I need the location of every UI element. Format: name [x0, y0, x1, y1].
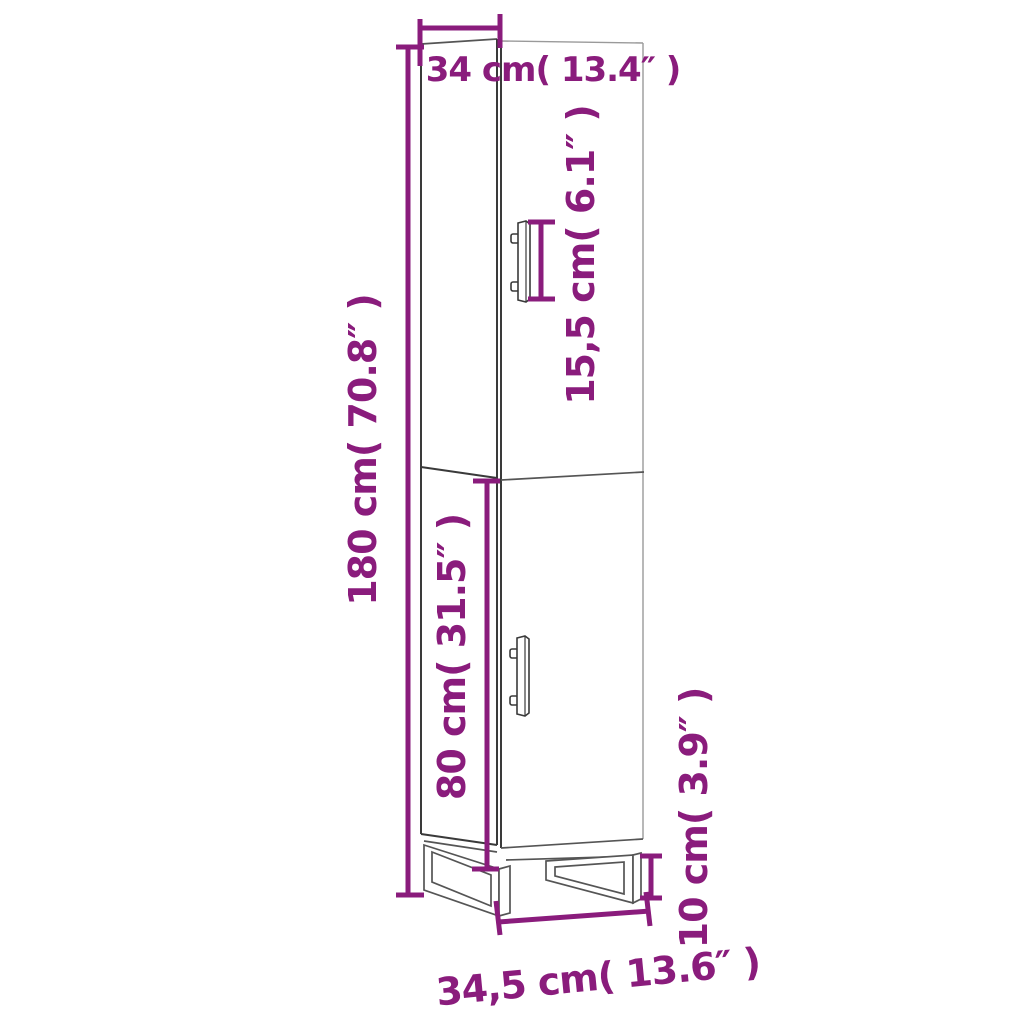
dimension-diagram: 34 cm( 13.4″ ) 180 cm( 70.8″ ) 15,5 cm( …: [0, 0, 1024, 1024]
dim-line: [498, 911, 650, 922]
handle-bar-icon: [517, 636, 529, 716]
dim-total-height-label: 180 cm( 70.8″ ): [344, 294, 382, 606]
cabinet-line-drawing: [0, 0, 1024, 1024]
dim-lower-door-height-label: 80 cm( 31.5″ ): [433, 514, 471, 800]
leg-front-side-face: [499, 866, 510, 916]
dim-total-height-lines: [396, 47, 424, 895]
leg-back-side-face: [633, 853, 641, 903]
leg-back: [546, 855, 633, 903]
cabinet-legs: [424, 845, 641, 916]
dim-leg-height-label: 10 cm( 3.9″ ): [675, 688, 713, 949]
dim-leg-height-lines: [640, 856, 662, 898]
dim-width-top-label: 34 cm( 13.4″ ): [426, 53, 681, 87]
dim-handle-height-label: 15,5 cm( 6.1″ ): [562, 105, 600, 405]
handle-bar-icon: [518, 221, 530, 302]
